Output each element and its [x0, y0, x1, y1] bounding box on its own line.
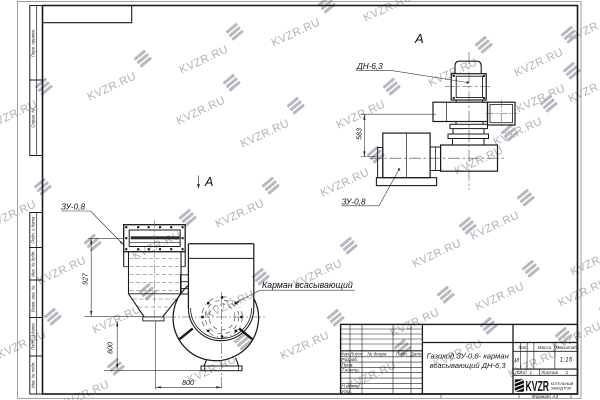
svg-text:Дата: Дата	[410, 351, 424, 356]
svg-text:Лит.: Лит.	[517, 345, 529, 350]
svg-text:Подп.: Подп.	[396, 351, 408, 356]
svg-text:А: А	[414, 31, 424, 46]
svg-text:ЗУ-0,8: ЗУ-0,8	[61, 203, 85, 212]
svg-text:И: И	[514, 358, 519, 365]
svg-text:Подп. и дата: Подп. и дата	[31, 323, 36, 351]
svg-text:№ докум.: № докум.	[367, 351, 387, 356]
svg-text:всасывающий ДН-6,3: всасывающий ДН-6,3	[430, 361, 507, 370]
svg-text:Формат А3: Формат А3	[532, 394, 559, 400]
svg-text:ЗАВОД РЭП: ЗАВОД РЭП	[551, 387, 572, 391]
svg-text:Разраб.: Разраб.	[342, 357, 359, 362]
svg-text:ДН-6,3: ДН-6,3	[356, 62, 383, 71]
svg-text:KVZR: KVZR	[526, 378, 550, 395]
svg-text:Инв. № подл.: Инв. № подл.	[31, 362, 36, 389]
svg-text:583: 583	[357, 128, 364, 140]
svg-text:Инв. № дубл.: Инв. № дубл.	[31, 251, 36, 277]
svg-text:1:15: 1:15	[560, 357, 573, 364]
svg-text:Н.контр.: Н.контр.	[342, 384, 361, 389]
svg-text:Карман всасывающий: Карман всасывающий	[262, 280, 353, 290]
svg-text:600: 600	[108, 342, 115, 354]
svg-text:ЗУ-0,8: ЗУ-0,8	[342, 197, 366, 206]
svg-text:Справ. №: Справ. №	[31, 108, 36, 128]
svg-text:Взам. инв. №: Взам. инв. №	[31, 285, 36, 312]
svg-text:Масса: Масса	[538, 345, 552, 350]
svg-text:Лист: Лист	[349, 351, 362, 356]
svg-text:800: 800	[182, 380, 194, 387]
svg-text:Пров.: Пров.	[342, 362, 354, 367]
svg-text:А: А	[204, 175, 213, 189]
svg-text:Лист: Лист	[514, 370, 527, 375]
svg-text:Масштаб: Масштаб	[555, 345, 577, 350]
svg-text:Т.контр.: Т.контр.	[342, 368, 361, 373]
svg-text:КОТЕЛЬНЫЙ: КОТЕЛЬНЫЙ	[551, 382, 574, 386]
svg-text:Листов: Листов	[540, 370, 558, 375]
svg-text:Изм.: Изм.	[340, 351, 350, 356]
svg-text:Утв.: Утв.	[342, 389, 352, 394]
svg-text:Подп. и дата: Подп. и дата	[31, 216, 36, 244]
svg-text:927: 927	[83, 272, 90, 285]
svg-text:2: 2	[565, 370, 569, 375]
svg-text:1: 1	[530, 370, 533, 375]
svg-text:Перв. примен.: Перв. примен.	[31, 29, 36, 58]
svg-text:Газоход ЗУ-0,8- карман: Газоход ЗУ-0,8- карман	[427, 352, 510, 361]
